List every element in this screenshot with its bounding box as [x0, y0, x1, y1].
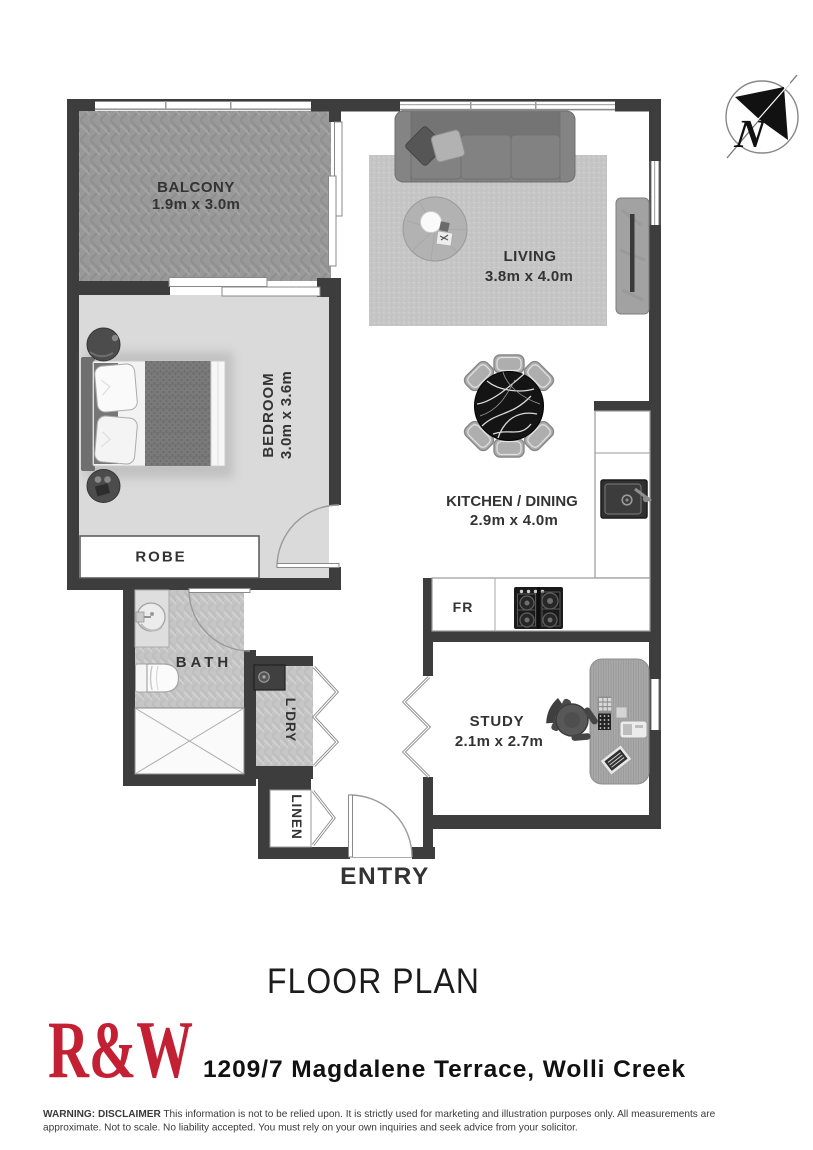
- svg-text:BEDROOM: BEDROOM: [260, 372, 277, 457]
- svg-text:2.9m x 4.0m: 2.9m x 4.0m: [470, 512, 558, 529]
- svg-text:WARNING: DISCLAIMER This info: WARNING: DISCLAIMER This information is …: [43, 1109, 716, 1120]
- svg-text:approximate. Not to scale. N: approximate. Not to scale. No liability …: [43, 1123, 578, 1134]
- svg-text:2.1m x 2.7m: 2.1m x 2.7m: [455, 733, 543, 750]
- svg-text:LINEN: LINEN: [289, 794, 304, 840]
- svg-text:ROBE: ROBE: [135, 549, 186, 566]
- svg-text:3.0m x 3.6m: 3.0m x 3.6m: [278, 371, 295, 459]
- svg-text:FLOOR PLAN: FLOOR PLAN: [267, 962, 480, 1001]
- svg-text:R&W: R&W: [48, 1004, 193, 1095]
- svg-text:KITCHEN / DINING: KITCHEN / DINING: [446, 493, 578, 510]
- svg-text:3.8m x 4.0m: 3.8m x 4.0m: [485, 268, 573, 285]
- svg-text:1.9m x 3.0m: 1.9m x 3.0m: [152, 196, 240, 213]
- svg-text:STUDY: STUDY: [470, 713, 525, 730]
- svg-text:1209/7 Magdalene Terrace, Woll: 1209/7 Magdalene Terrace, Wolli Creek: [203, 1056, 685, 1083]
- svg-text:BALCONY: BALCONY: [157, 179, 235, 196]
- svg-text:BATH: BATH: [176, 654, 233, 671]
- svg-text:FR: FR: [453, 599, 474, 615]
- svg-text:LIVING: LIVING: [503, 248, 556, 265]
- svg-text:ENTRY: ENTRY: [340, 863, 430, 890]
- svg-text:L'DRY: L'DRY: [283, 698, 298, 742]
